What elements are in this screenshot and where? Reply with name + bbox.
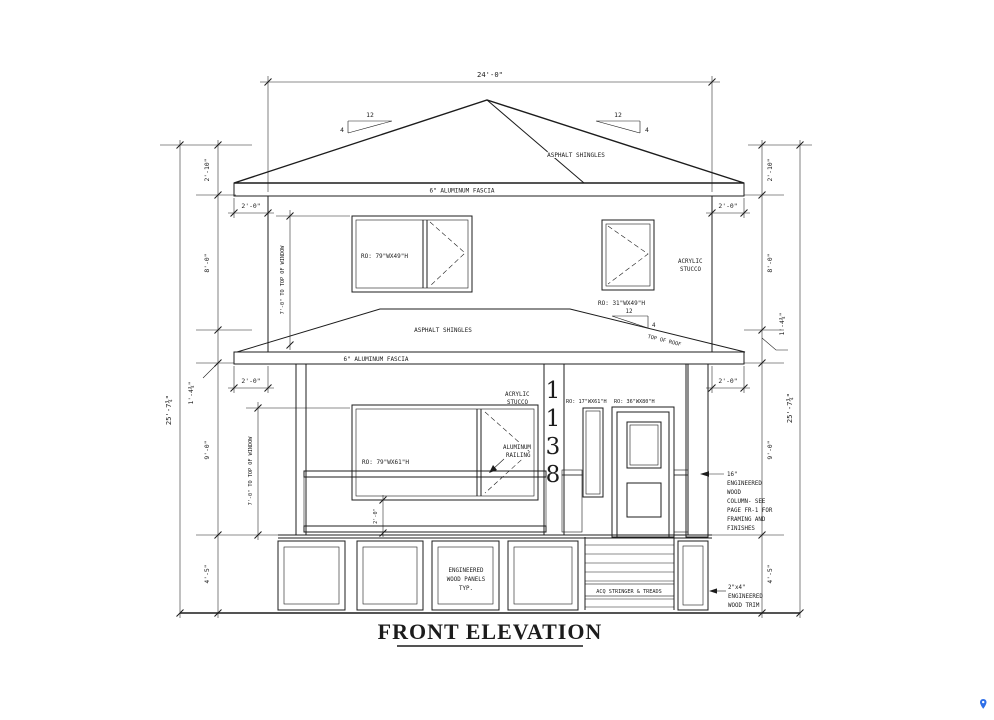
panels-note-line: TYP. (459, 586, 473, 592)
trim-note-line: ENGINEERED (728, 594, 763, 600)
upper-roof-shingles-label: ASPHALT SHINGLES (547, 152, 605, 159)
porch-roof-shingles-label: ASPHALT SHINGLES (414, 327, 472, 334)
house-number-digit: 1 (546, 378, 561, 404)
dim-overall-height-label: 25'-7¾" (164, 395, 173, 425)
pitch-run-label: 12 (366, 111, 374, 119)
main-window-ro-label: RO: 79"WX61"H (362, 459, 409, 466)
side-window-ro-label: RO: 17"WX61"H (566, 399, 607, 405)
upper-window-left-ro-label: RO: 79"WX49"H (361, 253, 408, 260)
panels-note-line: WOOD PANELS (447, 577, 486, 583)
pitch-rise-label: 4 (652, 323, 656, 329)
dim-window-head-main-label: 7'-0" TO TOP OF WINDOW (248, 436, 254, 506)
dim-overhang-label: 2'-0" (241, 202, 260, 210)
dim-main-wall-label: 9'-0" (766, 440, 774, 459)
stairs-note-label: ACQ STRINGER & TREADS (596, 589, 662, 595)
pitch-run-label: 12 (614, 111, 622, 119)
panels-note-line: ENGINEERED (449, 568, 484, 574)
pitch-rise-label: 4 (340, 126, 344, 134)
dim-band-label: 1'-4¾" (187, 381, 195, 404)
dim-sill-label: 2'-0" (373, 508, 379, 524)
column-note-line: ENGINEERED (727, 481, 762, 487)
upper-fascia-label: 6" ALUMINUM FASCIA (429, 188, 494, 195)
dim-foundation-label: 4'-5" (203, 564, 211, 583)
column-note-line: COLUMN- SEE (727, 499, 766, 505)
drawing-title: FRONT ELEVATION (378, 619, 603, 644)
dim-overall-height-label: 25'-7¾" (785, 393, 794, 423)
door-ro-label: RO: 36"WX80"H (614, 399, 655, 405)
house-number-digit: 3 (546, 434, 561, 460)
column-note-line: PAGE FR-1 FOR (727, 508, 773, 514)
pitch-run-label: 12 (626, 309, 633, 315)
railing-note-line1: ALUMINUM (503, 445, 531, 451)
dim-overhang-label: 2'-0" (718, 202, 737, 210)
stucco-note-upper-line1: ACRYLIC (678, 259, 703, 265)
pitch-rise-label: 4 (645, 126, 649, 134)
dim-band-label: 1'-4¾" (778, 312, 786, 335)
stucco-note-upper-line2: STUCCO (680, 267, 701, 273)
dim-foundation-label: 4'-5" (766, 564, 774, 583)
drawing-sheet: RO: 79"WX49"H RO: 31"WX49"H ACRYLIC STUC… (0, 0, 994, 720)
front-elevation-drawing: RO: 79"WX49"H RO: 31"WX49"H ACRYLIC STUC… (0, 0, 994, 720)
trim-note-line: 2"x4" (728, 585, 745, 591)
house-number-digit: 8 (546, 462, 561, 488)
column-note-line: FINISHES (727, 526, 755, 532)
dim-roof-height-label: 2'-10" (203, 158, 211, 181)
dim-window-head-upper-label: 7'-0" TO TOP OF WINDOW (280, 245, 286, 315)
column-note-line: WOOD (727, 490, 741, 496)
railing-note-line2: RAILING (506, 453, 531, 459)
house-number-digit: 1 (546, 406, 561, 432)
dim-roof-height-label: 2'-10" (766, 158, 774, 181)
column-note-line: FRAMING AND (727, 517, 766, 523)
dim-upper-wall-label: 8'-0" (203, 253, 211, 272)
dim-overhang-label: 2'-0" (241, 377, 260, 385)
dim-main-wall-label: 9'-0" (203, 440, 211, 459)
dim-overhang-label: 2'-0" (718, 377, 737, 385)
column-note-line: 16" (727, 472, 737, 478)
stucco-note-main-line1: ACRYLIC (505, 392, 530, 398)
dim-upper-wall-label: 8'-0" (766, 253, 774, 272)
dim-overall-width-label: 24'-0" (477, 70, 503, 79)
title-block: FRONT ELEVATION (378, 619, 603, 646)
trim-note-line: WOOD TRIM (728, 603, 760, 609)
lower-fascia-label: 6" ALUMINUM FASCIA (343, 356, 408, 363)
upper-window-right-ro-label: RO: 31"WX49"H (598, 300, 645, 307)
